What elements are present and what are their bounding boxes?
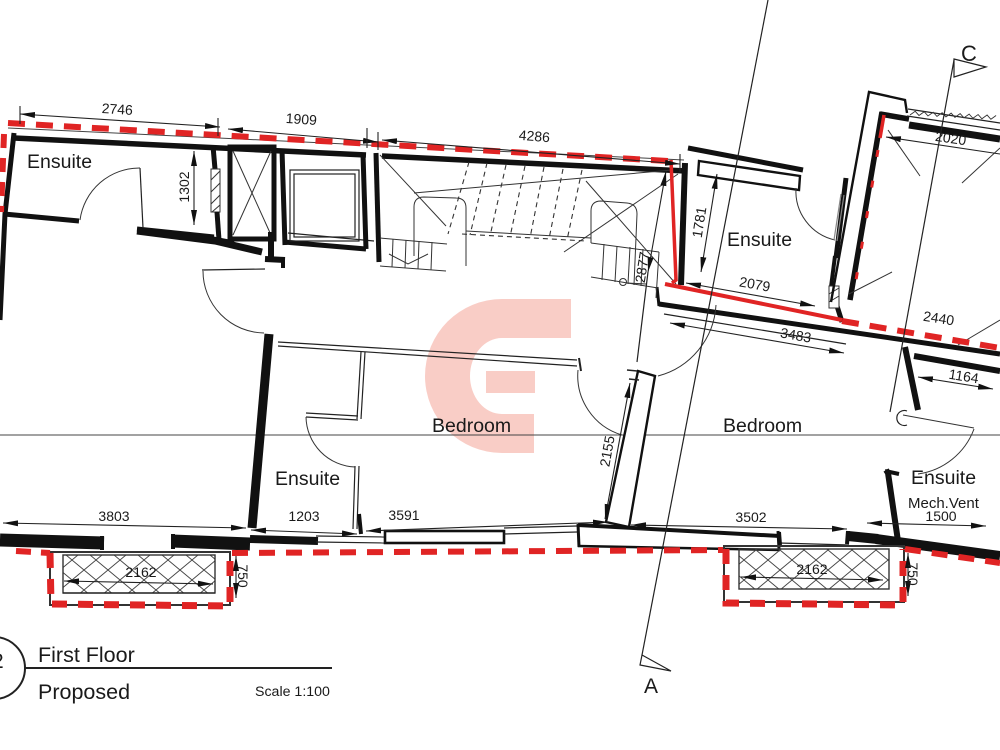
svg-text:3591: 3591 (388, 507, 419, 523)
svg-text:4286: 4286 (518, 127, 551, 145)
svg-text:750: 750 (235, 564, 251, 588)
svg-text:First Floor: First Floor (38, 643, 135, 667)
svg-text:2746: 2746 (101, 100, 133, 118)
svg-text:3502: 3502 (735, 509, 766, 525)
svg-text:Ensuite: Ensuite (911, 467, 976, 489)
svg-text:2: 2 (0, 650, 4, 673)
svg-text:Scale 1:100: Scale 1:100 (255, 684, 330, 700)
svg-text:1203: 1203 (288, 508, 319, 524)
svg-text:Mech.Vent: Mech.Vent (908, 495, 980, 512)
svg-text:Ensuite: Ensuite (727, 229, 792, 251)
svg-text:Ensuite: Ensuite (275, 468, 340, 490)
svg-text:2162: 2162 (796, 561, 827, 577)
svg-text:A: A (644, 675, 658, 698)
svg-text:Bedroom: Bedroom (432, 415, 511, 437)
svg-text:C: C (961, 41, 977, 66)
svg-text:Ensuite: Ensuite (27, 151, 92, 173)
svg-text:Proposed: Proposed (38, 680, 130, 704)
svg-text:2162: 2162 (125, 564, 156, 580)
svg-text:1909: 1909 (285, 110, 317, 128)
svg-text:750: 750 (905, 562, 921, 586)
svg-text:3803: 3803 (98, 508, 129, 524)
svg-text:1302: 1302 (176, 171, 192, 202)
svg-text:Bedroom: Bedroom (723, 415, 802, 437)
